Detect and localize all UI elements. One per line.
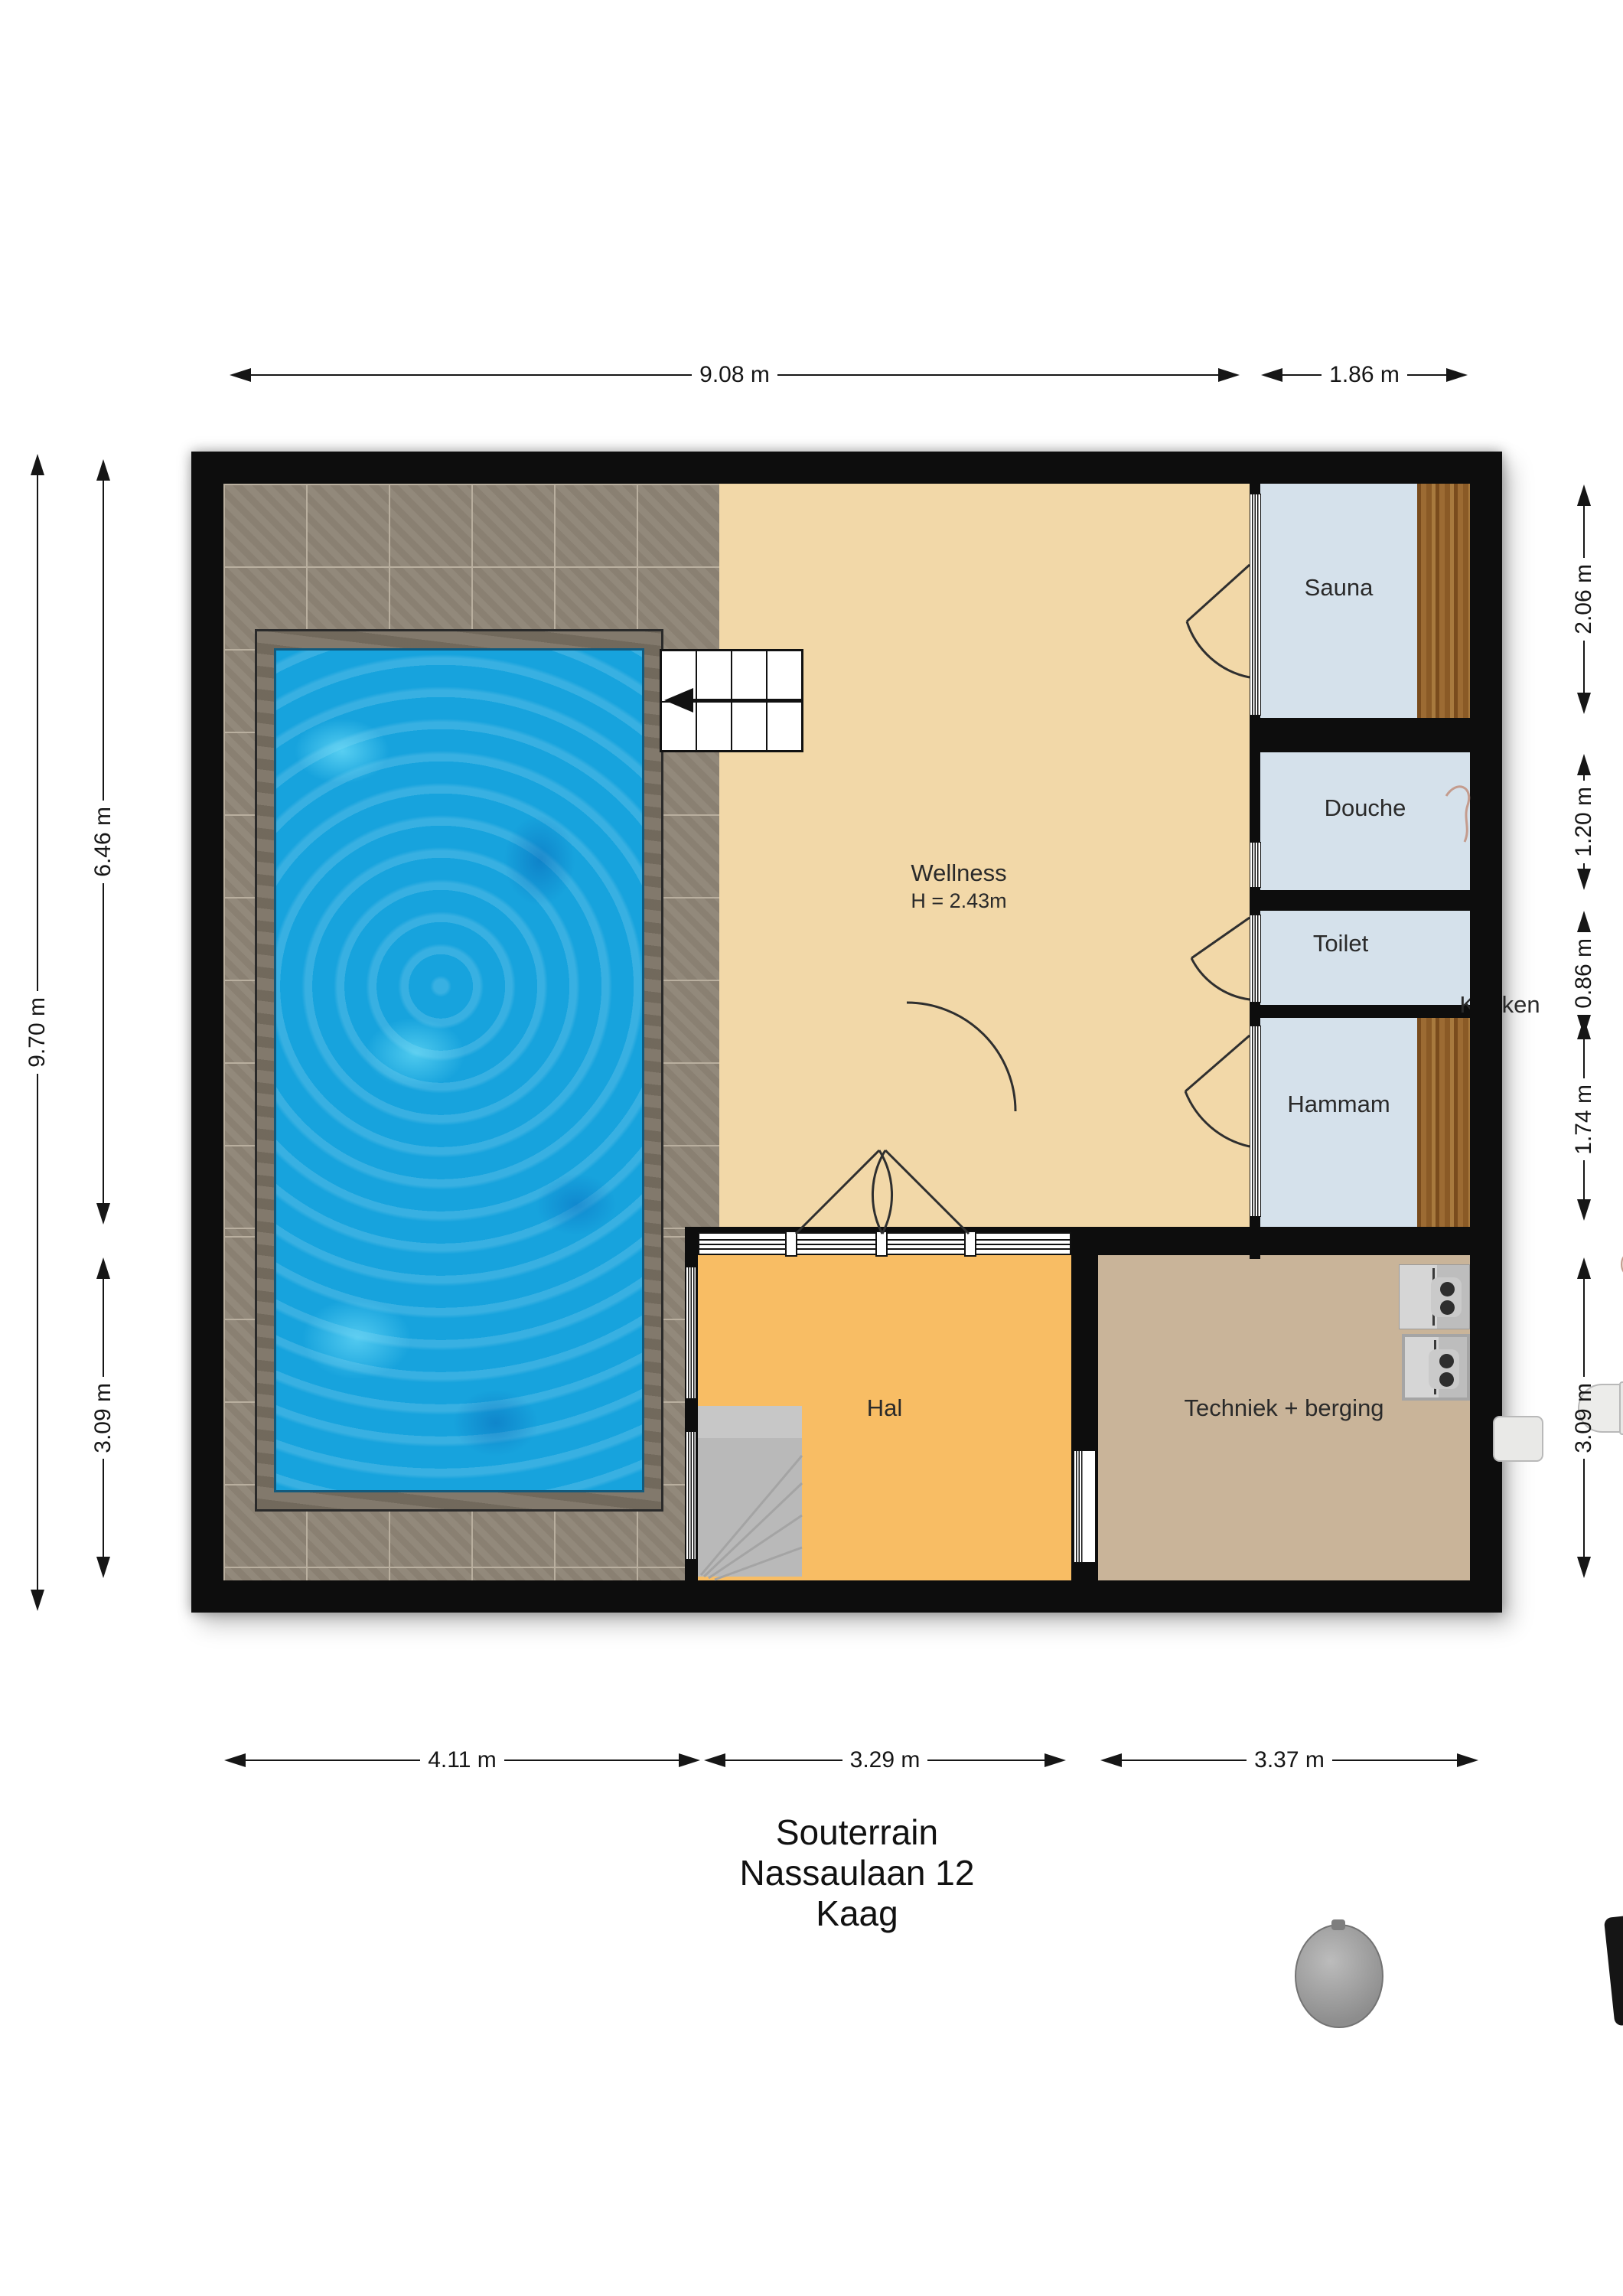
door-post-left: [785, 1231, 797, 1257]
pool: [274, 648, 644, 1492]
plan-title: Souterrain Nassaulaan 12 Kaag: [627, 1812, 1087, 1934]
dim-right-309: 3.09 m: [1570, 1257, 1598, 1578]
hal-west-window-lower: [686, 1431, 696, 1560]
dim-label: 3.37 m: [1247, 1747, 1332, 1773]
washing-machine-icon: [1399, 1264, 1470, 1329]
wall-sauna-douche: [1260, 718, 1470, 752]
dim-bottom-411: 4.11 m: [224, 1748, 700, 1773]
building-outline: Keuken: [191, 452, 1502, 1613]
douche-opening: [1250, 842, 1261, 888]
dim-right-120: 1.20 m: [1570, 754, 1598, 890]
floorplan-page: Keuken: [0, 0, 1623, 2296]
boiler-icon: [1295, 1924, 1383, 2028]
toilet-tank: [1619, 1381, 1623, 1435]
dim-label: 1.86 m: [1322, 362, 1407, 388]
dim-right-174: 1.74 m: [1570, 1018, 1598, 1221]
door-post-center: [875, 1231, 888, 1257]
dim-left-970: 9.70 m: [24, 454, 51, 1611]
dim-label: 3.09 m: [1571, 1377, 1597, 1459]
dim-label: 1.20 m: [1571, 781, 1597, 863]
dim-label: 2.06 m: [1571, 558, 1597, 641]
dim-label: 9.70 m: [24, 991, 51, 1074]
stairs-up: [660, 649, 803, 752]
dim-label: 6.46 m: [90, 801, 116, 883]
title-line-city: Kaag: [627, 1893, 1087, 1934]
room-label-wellness: Wellness: [719, 859, 1198, 887]
room-label-toilet: Toilet: [1260, 930, 1421, 957]
dim-right-206: 2.06 m: [1570, 484, 1598, 714]
sauna-door: [1250, 494, 1261, 716]
toilet-door: [1250, 915, 1261, 1003]
sauna-bench-wood: [1417, 484, 1470, 718]
dim-label: 4.11 m: [420, 1747, 504, 1773]
hammam-bench-wood: [1417, 1018, 1470, 1227]
stairs-down: [698, 1406, 802, 1577]
heat-pump-icon: [1604, 1913, 1623, 2027]
dim-left-309: 3.09 m: [90, 1257, 117, 1578]
dim-label: 3.29 m: [842, 1747, 928, 1773]
dim-bottom-337: 3.37 m: [1100, 1748, 1478, 1773]
dim-top-186: 1.86 m: [1261, 363, 1468, 387]
dim-label: 9.08 m: [692, 362, 777, 388]
dim-top-908: 9.08 m: [230, 363, 1240, 387]
hammam-door: [1250, 1026, 1261, 1217]
title-line-floor: Souterrain: [627, 1812, 1087, 1853]
door-post-right: [964, 1231, 976, 1257]
dim-left-646: 6.46 m: [90, 459, 117, 1225]
room-label-wellness-height: H = 2.43m: [719, 889, 1198, 913]
dryer-icon: [1402, 1334, 1470, 1401]
hal-techniek-door: [1074, 1450, 1096, 1563]
room-label-douche: Douche: [1260, 794, 1470, 822]
hal-west-window-upper: [686, 1267, 696, 1399]
room-label-sauna: Sauna: [1260, 574, 1417, 602]
wall-right-patch: [1470, 941, 1502, 1064]
sink-icon: [1493, 1416, 1543, 1462]
title-line-street: Nassaulaan 12: [627, 1853, 1087, 1893]
room-label-hal: Hal: [698, 1394, 1071, 1422]
room-label-techniek: Techniek + berging: [1098, 1394, 1470, 1422]
dim-label: 3.09 m: [90, 1377, 116, 1459]
dim-bottom-329: 3.29 m: [704, 1748, 1066, 1773]
wall-douche-toilet: [1260, 890, 1470, 911]
dim-label: 1.74 m: [1571, 1078, 1597, 1161]
room-label-hammam: Hammam: [1260, 1091, 1417, 1118]
